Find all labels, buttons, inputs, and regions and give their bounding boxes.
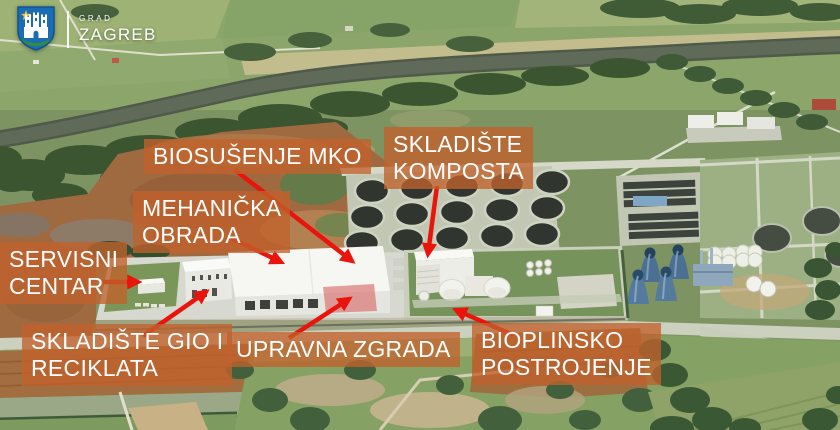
logo-org-name: ZAGREB (79, 25, 157, 45)
label-biosusenje-mko: BIOSUŠENJE MKO (144, 139, 371, 174)
wwtp-right-zone (693, 152, 840, 320)
label-line: SKLADIŠTE GIO I (31, 328, 223, 355)
digester-towers (627, 245, 689, 305)
label-line: UPRAVNA ZGRADA (236, 336, 451, 363)
label-bioplinsko-postrojenje: BIOPLINSKO POSTROJENJE (472, 323, 661, 385)
service-center-building (136, 278, 165, 294)
zagreb-coat-of-arms-icon (16, 5, 56, 53)
label-servisni-centar: SERVISNI CENTAR (0, 242, 127, 304)
logo-org-prefix: GRAD (79, 14, 157, 23)
label-line: BIOSUŠENJE MKO (153, 143, 362, 170)
label-line: RECIKLATA (31, 355, 223, 382)
logo-divider (67, 11, 69, 48)
label-skladiste-gio-i-reciklata: SKLADIŠTE GIO I RECIKLATA (22, 324, 232, 386)
gio-storage-building (182, 258, 232, 303)
label-line: MEHANIČKA (142, 195, 281, 222)
label-line: BIOPLINSKO (481, 327, 652, 354)
label-line: SERVISNI (9, 246, 118, 273)
label-line: OBRADA (142, 222, 281, 249)
label-mehanicka-obrada: MEHANIČKA OBRADA (133, 191, 290, 253)
label-line: CENTAR (9, 273, 118, 300)
label-line: POSTROJENJE (481, 354, 652, 381)
label-line: KOMPOSTA (393, 158, 524, 185)
label-skladiste-komposta: SKLADIŠTE KOMPOSTA (384, 127, 533, 189)
logo-text: GRAD ZAGREB (79, 14, 157, 45)
main-processing-building (228, 246, 404, 316)
label-line: SKLADIŠTE (393, 131, 524, 158)
label-upravna-zgrada: UPRAVNA ZGRADA (227, 332, 460, 367)
site-branding: GRAD ZAGREB (16, 5, 157, 53)
annotated-aerial-rendering: GRAD ZAGREB BIOSUŠENJE MKO MEHANIČKA OBR… (0, 0, 840, 430)
